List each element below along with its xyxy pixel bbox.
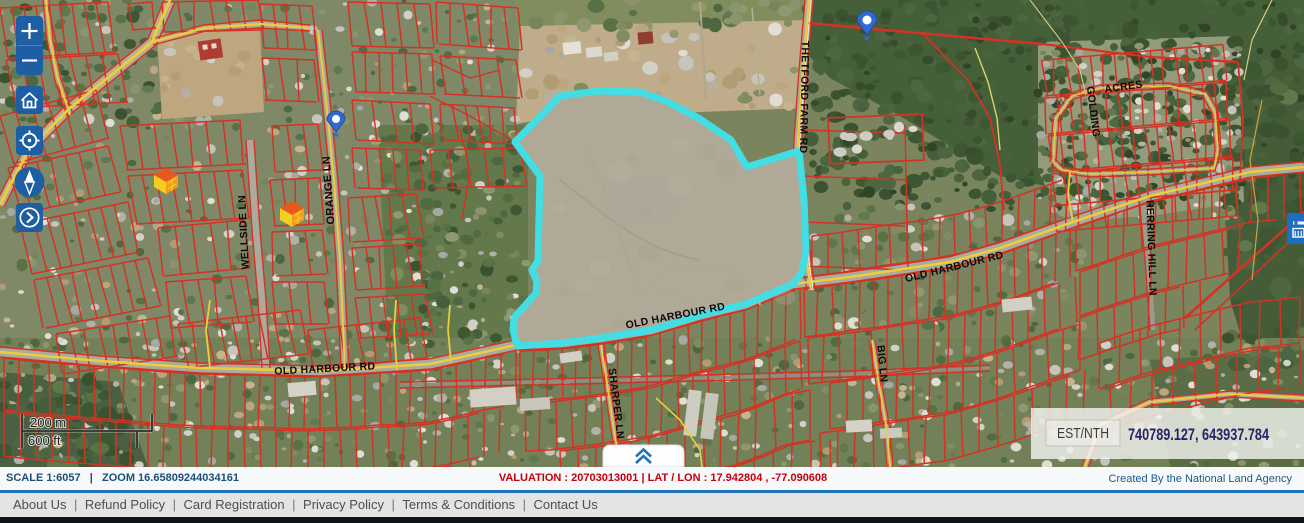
svg-text:THETFORD FARM RD: THETFORD FARM RD	[797, 41, 811, 154]
svg-text:740789.127, 643937.784: 740789.127, 643937.784	[1128, 425, 1269, 444]
svg-text:EST/NTH: EST/NTH	[1057, 425, 1109, 442]
svg-text:200 m: 200 m	[30, 415, 66, 430]
svg-text:600 ft: 600 ft	[28, 433, 61, 448]
